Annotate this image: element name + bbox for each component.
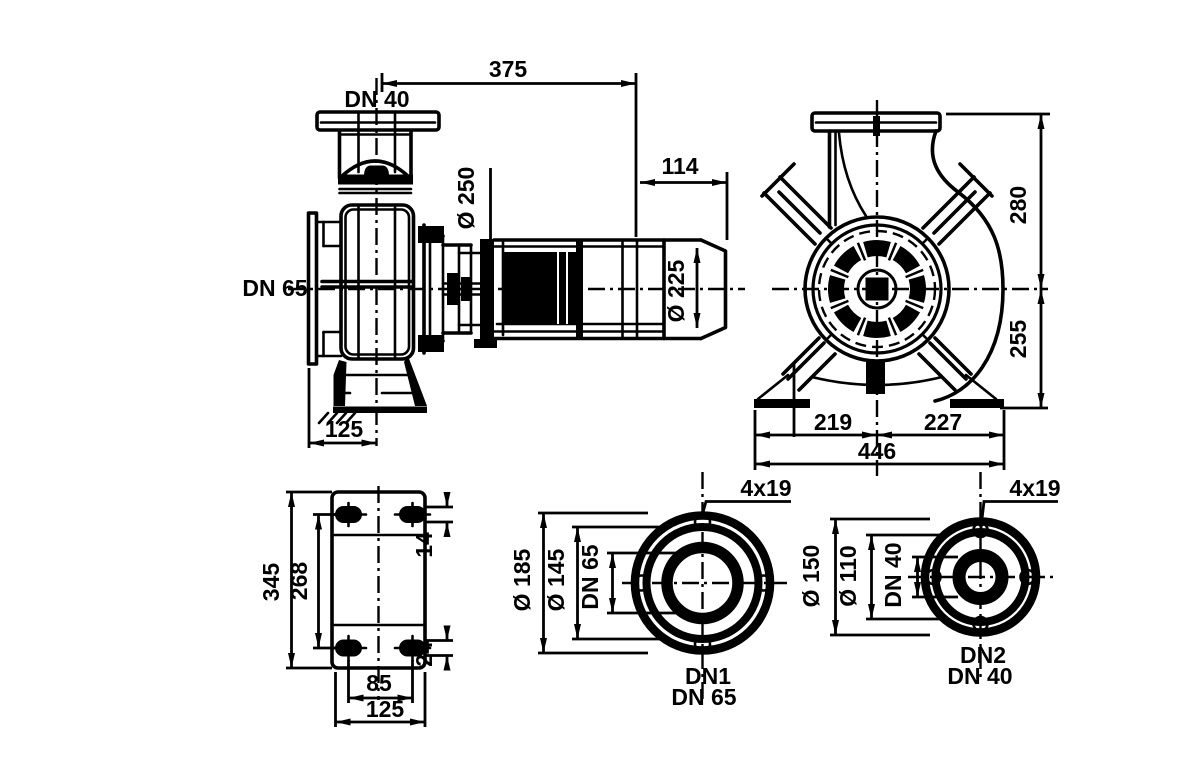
- svg-text:125: 125: [366, 696, 405, 722]
- svg-text:DN 40: DN 40: [947, 663, 1012, 689]
- svg-text:125: 125: [325, 416, 364, 442]
- svg-text:24: 24: [411, 641, 437, 667]
- svg-text:Ø 145: Ø 145: [543, 548, 569, 611]
- svg-text:227: 227: [924, 409, 962, 435]
- svg-text:85: 85: [366, 670, 392, 696]
- svg-text:14: 14: [411, 532, 437, 558]
- svg-text:375: 375: [489, 56, 528, 82]
- svg-text:4x19: 4x19: [1009, 475, 1060, 501]
- svg-text:DN 65: DN 65: [242, 275, 307, 301]
- svg-text:345: 345: [258, 563, 284, 602]
- svg-text:219: 219: [814, 409, 852, 435]
- svg-text:DN 65: DN 65: [671, 684, 736, 710]
- svg-text:Ø 150: Ø 150: [798, 545, 824, 608]
- svg-text:255: 255: [1005, 320, 1031, 359]
- svg-text:268: 268: [286, 562, 312, 601]
- svg-text:Ø 185: Ø 185: [509, 548, 535, 611]
- svg-text:Ø 110: Ø 110: [835, 545, 861, 606]
- svg-text:280: 280: [1005, 186, 1031, 224]
- svg-text:114: 114: [661, 153, 698, 179]
- svg-text:Ø 225: Ø 225: [663, 259, 689, 322]
- svg-text:Ø 250: Ø 250: [453, 167, 479, 230]
- svg-text:4x19: 4x19: [740, 475, 791, 501]
- svg-text:DN 65: DN 65: [577, 544, 603, 609]
- svg-text:446: 446: [858, 438, 896, 464]
- svg-text:DN 40: DN 40: [880, 542, 906, 607]
